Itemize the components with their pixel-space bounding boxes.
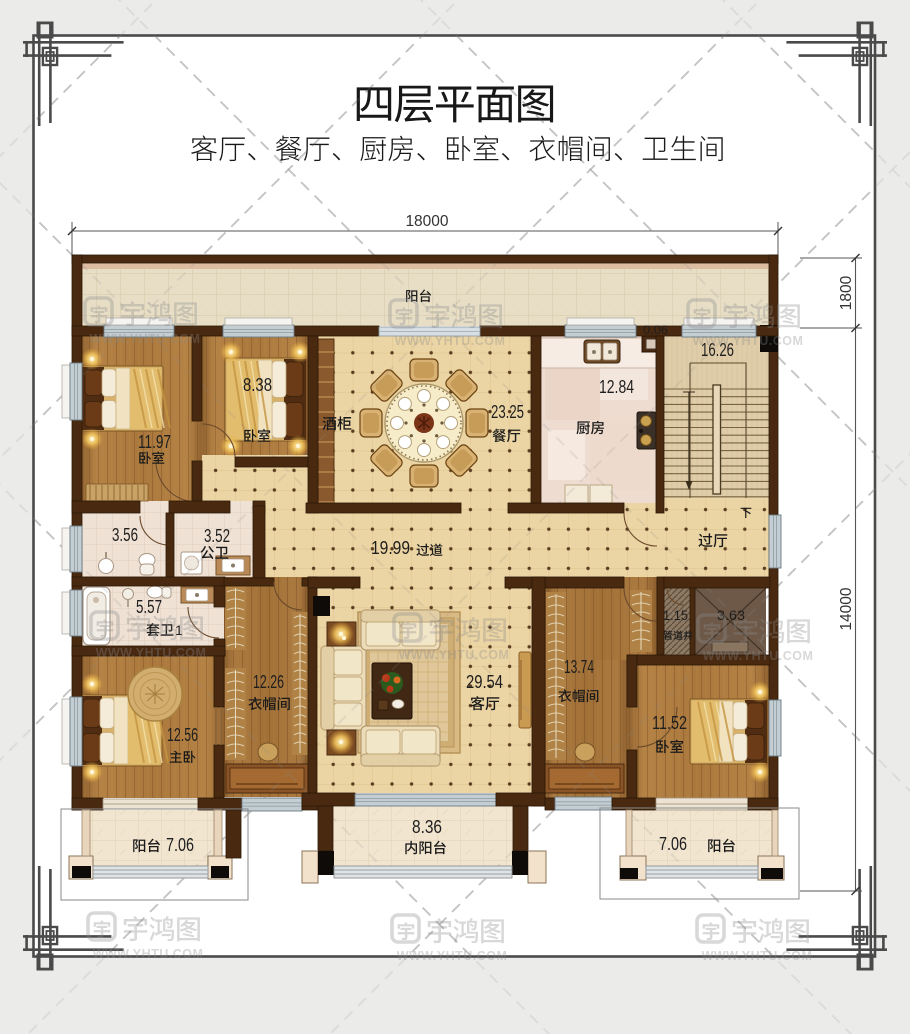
svg-text:23.25: 23.25 — [491, 401, 524, 422]
svg-text:WWW.YHTU.COM: WWW.YHTU.COM — [397, 949, 508, 963]
svg-text:1.15: 1.15 — [663, 607, 688, 623]
svg-text:WWW.YHTU.COM: WWW.YHTU.COM — [702, 949, 813, 963]
svg-text:WWW.YHTU.COM: WWW.YHTU.COM — [96, 646, 207, 660]
svg-text:12.26: 12.26 — [253, 671, 284, 692]
svg-text:5.57: 5.57 — [136, 596, 162, 617]
svg-text:11.97: 11.97 — [138, 431, 171, 452]
svg-text:18000: 18000 — [405, 213, 448, 230]
svg-text:WWW.YHTU.COM: WWW.YHTU.COM — [703, 649, 814, 663]
svg-text:1800: 1800 — [838, 275, 855, 310]
svg-text:WWW.YHTU.COM: WWW.YHTU.COM — [395, 334, 506, 348]
svg-text:WWW.YHTU.COM: WWW.YHTU.COM — [93, 947, 204, 961]
svg-text:11.52: 11.52 — [652, 712, 687, 733]
svg-text:7.06: 7.06 — [659, 833, 687, 854]
svg-text:8.36: 8.36 — [412, 816, 442, 837]
svg-text:19.99: 19.99 — [371, 537, 410, 558]
svg-text:3.52: 3.52 — [204, 525, 230, 546]
svg-text:WWW.YHTU.COM: WWW.YHTU.COM — [90, 332, 201, 346]
svg-text:8.38: 8.38 — [243, 374, 272, 395]
svg-text:3.56: 3.56 — [112, 524, 138, 545]
svg-text:13.74: 13.74 — [564, 656, 594, 677]
svg-text:7.06: 7.06 — [166, 834, 194, 855]
svg-text:WWW.YHTU.COM: WWW.YHTU.COM — [399, 648, 510, 662]
svg-text:29.54: 29.54 — [466, 671, 503, 692]
svg-text:WWW.YHTU.COM: WWW.YHTU.COM — [693, 334, 804, 348]
svg-text:14000: 14000 — [838, 587, 855, 630]
svg-text:0.06: 0.06 — [643, 323, 668, 337]
svg-text:12.84: 12.84 — [599, 376, 634, 397]
svg-text:12.56: 12.56 — [167, 724, 198, 745]
